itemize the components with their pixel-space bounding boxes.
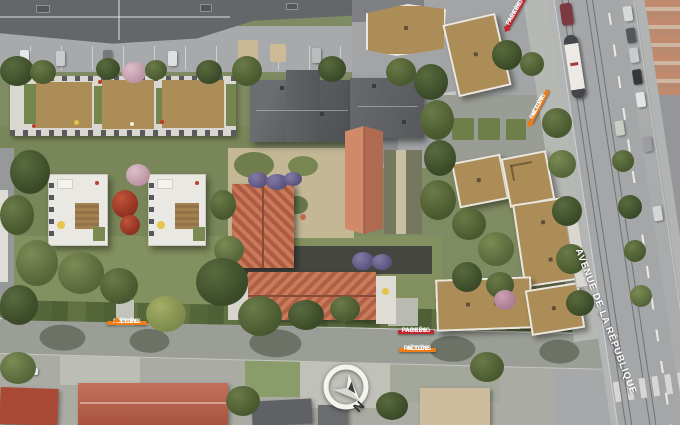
access-pietons-badge-bottom-left: ACCÈS PIÉTONS [107,321,147,325]
tree [520,52,544,76]
roof-terrace [376,276,396,324]
tree [0,56,34,86]
tree [0,352,36,384]
roof-garden [226,84,236,126]
new-building-6 [435,276,533,331]
tree [226,386,260,416]
house-red-roof [0,387,59,425]
tree [0,285,38,325]
roof-vent [404,26,408,30]
roof-garden [93,227,105,241]
tree [552,196,582,226]
planter [452,118,474,140]
chimney [280,86,284,90]
aerial-site-plan: ACCÈS PARKING ACCÈS PIÉTONS ACCÈS PIÉTON… [0,0,680,425]
tree [376,392,408,420]
tree [470,352,504,382]
residence-roof [36,82,92,128]
chimney [402,120,406,124]
badge-arrow [113,313,121,322]
roof-ridge [80,402,226,404]
window-strip [149,183,154,239]
red-maple-tree [112,190,138,218]
tree [618,195,642,219]
residence-roof [102,80,154,129]
rooftop-unit [36,5,50,13]
badge-line: PIÉTONS [404,346,432,354]
north-residence-row [10,76,236,136]
red-tree [195,181,199,185]
rooftop-unit [57,179,73,189]
tree [196,60,222,84]
tree [288,300,324,330]
tree [612,150,634,172]
tree [146,296,186,332]
access-pietons-badge-bottom: ACCÈS PIÉTONS [399,348,436,352]
tree [318,56,346,82]
roof-ridge [358,106,418,107]
flower-bed [300,214,306,220]
tree [420,100,454,140]
umbrella [382,288,389,295]
blossom-tree [122,62,146,83]
wisteria-tree [372,254,392,270]
mansion-gable [286,70,320,142]
roof-vent [473,52,478,57]
tree-shadow [129,328,170,353]
blossom-tree [126,164,150,186]
roof-vent [541,220,546,225]
roof-garden [156,88,162,124]
tram-door [570,62,578,66]
tree [478,232,514,266]
red-tree [160,120,164,124]
wisteria-tree [352,252,374,270]
tree [330,296,360,322]
tree [452,262,482,292]
roof-ridge [256,110,348,111]
rooftop-unit [200,4,212,12]
tree [10,150,50,194]
roof-garden [94,86,102,124]
roof-detail [510,161,532,167]
roof-garden [193,227,205,241]
roof-terrace [75,203,99,229]
red-maple-tree [120,215,140,235]
tree [424,140,456,176]
chapel-roof-building [345,126,383,234]
window-strip [49,183,54,239]
tree [492,40,522,70]
chimney [372,84,376,88]
blossom-tree [494,290,516,310]
tree-shadow [429,335,476,362]
roof-garden [24,84,36,124]
planter [478,118,500,140]
roof-ridge [262,184,264,268]
tree [96,58,120,80]
tree [30,60,56,84]
roof-vent [552,306,557,311]
tree-shadow [539,339,580,364]
house-red-roof [78,383,228,425]
car [56,51,65,66]
umbrella [74,120,79,125]
residence-roof [162,80,224,128]
driveway [60,355,140,385]
badge-line: PARKING [402,328,431,336]
rooftop-unit [130,122,134,126]
tree [452,208,486,240]
new-building-1 [366,4,446,56]
house-gray-roof [251,398,312,425]
tree [145,60,167,80]
tree [16,240,58,286]
tree [420,180,456,220]
roof-terrace [175,203,199,229]
compass-north-label: N [350,398,367,415]
bus [559,2,574,26]
tree [238,296,282,336]
white-roof-building-1 [48,174,108,246]
window-strip [10,130,236,136]
compass-icon: N [316,360,376,420]
red-tree [32,124,36,128]
chimney [320,112,324,116]
tree [210,190,236,220]
white-roof-building-2 [148,174,206,246]
rooftop-unit [286,3,298,10]
tree [548,150,576,178]
roof-vent [476,178,481,183]
umbrella [157,221,165,229]
roof-vent [548,257,553,262]
wisteria-tree [284,172,302,186]
access-parking-badge-bottom: ACCÈS PARKING [398,330,434,334]
wisteria-tree [248,172,268,188]
house-tan [420,388,490,425]
tree [0,195,34,235]
red-tree [98,80,102,84]
planter [270,44,286,62]
roof-ridge [0,16,230,18]
tree [414,64,448,100]
roof-ridge [118,0,120,40]
tree [232,56,262,86]
tree [630,285,652,307]
tree [196,258,248,306]
roof-detail [510,165,515,181]
tree [386,58,416,86]
red-tree [95,181,99,185]
tree [624,240,646,262]
tree-shadow [39,324,86,351]
tree [58,252,104,294]
tree [100,268,138,304]
car [168,51,177,66]
tree [542,108,572,138]
footpath [396,150,406,234]
roof-vent [466,302,470,306]
rooftop-unit [157,179,173,189]
umbrella [57,221,65,229]
